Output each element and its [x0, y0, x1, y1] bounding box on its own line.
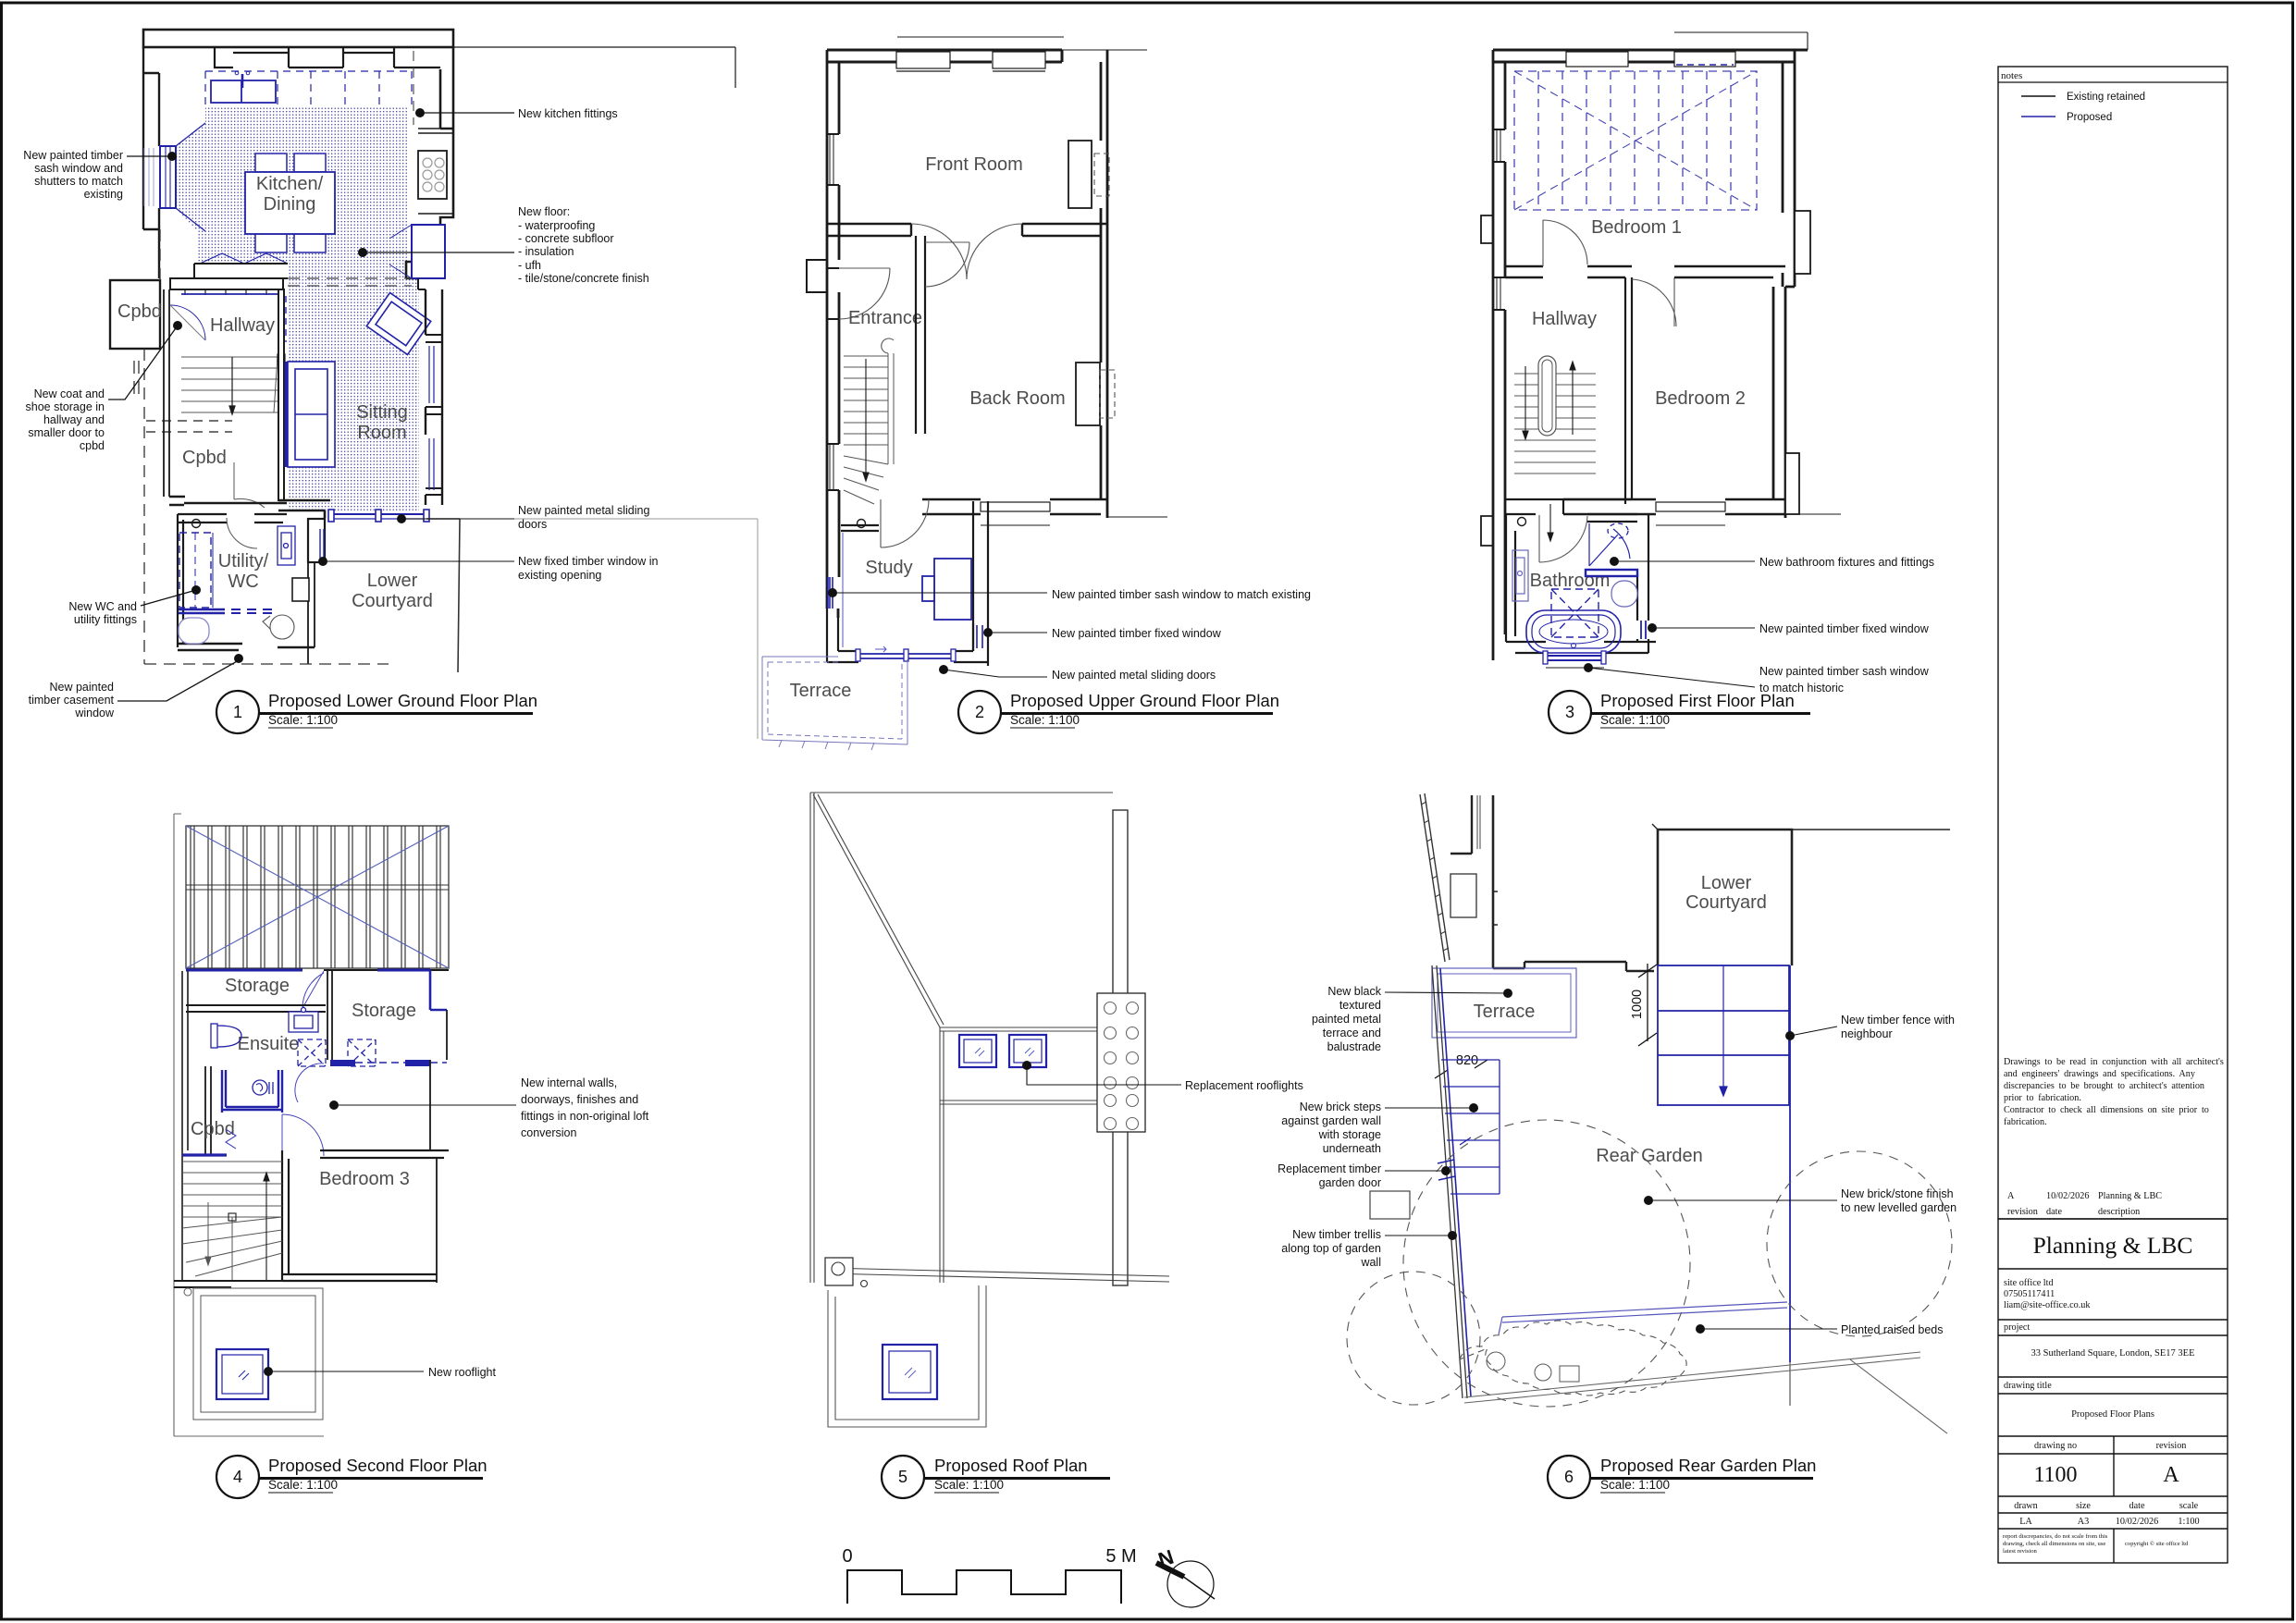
svg-text:- insulation: - insulation [518, 245, 574, 258]
svg-text:Proposed Rear Garden Plan: Proposed Rear Garden Plan [1600, 1456, 1816, 1475]
svg-text:New bathroom fixtures and fitt: New bathroom fixtures and fittings [1759, 556, 1934, 569]
svg-text:Scale: 1:100: Scale: 1:100 [934, 1478, 1004, 1492]
svg-text:drawing no: drawing no [2034, 1441, 2077, 1451]
svg-text:Cpbd: Cpbd [117, 301, 162, 322]
svg-text:hallway and: hallway and [43, 413, 105, 426]
svg-text:New painted timber sash window: New painted timber sash window [1759, 665, 1930, 678]
svg-text:neighbour: neighbour [1841, 1027, 1893, 1040]
svg-text:New painted timber sash window: New painted timber sash window to match … [1052, 588, 1311, 601]
svg-text:Utility/: Utility/ [218, 551, 269, 572]
svg-text:liam@site-office.co.uk: liam@site-office.co.uk [2004, 1300, 2091, 1310]
svg-text:Courtyard: Courtyard [352, 591, 433, 611]
svg-text:with storage: with storage [1318, 1128, 1381, 1141]
svg-text:drawing, check all dimensions: drawing, check all dimensions on site, u… [2003, 1541, 2105, 1547]
svg-text:Proposed Floor Plans: Proposed Floor Plans [2071, 1409, 2154, 1420]
svg-text:Lower: Lower [367, 571, 418, 591]
svg-text:scale: scale [2179, 1501, 2199, 1511]
svg-text:to new levelled garden: to new levelled garden [1841, 1201, 1957, 1214]
svg-text:notes: notes [2001, 70, 2022, 81]
svg-text:Hallway: Hallway [210, 315, 275, 336]
svg-text:1:100: 1:100 [2178, 1517, 2199, 1527]
svg-text:1100: 1100 [2033, 1463, 2077, 1487]
svg-text:New painted metal sliding: New painted metal sliding [518, 504, 649, 517]
svg-text:Planted raised beds: Planted raised beds [1841, 1323, 1944, 1336]
svg-text:6: 6 [1564, 1468, 1574, 1486]
svg-text:textured: textured [1339, 999, 1381, 1012]
svg-text:Scale: 1:100: Scale: 1:100 [1010, 713, 1080, 727]
svg-text:New brick steps: New brick steps [1300, 1100, 1381, 1113]
svg-text:copyright © site office ltd: copyright © site office ltd [2125, 1541, 2189, 1547]
svg-text:Planning & LBC: Planning & LBC [2098, 1191, 2162, 1201]
svg-text:New black: New black [1327, 985, 1381, 998]
svg-text:Sitting: Sitting [356, 402, 408, 423]
svg-text:New WC and: New WC and [68, 600, 137, 613]
svg-text:timber casement: timber casement [29, 694, 115, 707]
svg-text:820: 820 [1456, 1053, 1478, 1068]
svg-text:utility fittings: utility fittings [74, 613, 137, 626]
svg-text:33 Sutherland Square, London,: 33 Sutherland Square, London, SE17 3EE [2031, 1348, 2194, 1359]
svg-text:discrepancies to be brought: discrepancies to be brought to architect… [2004, 1081, 2204, 1091]
svg-text:doorways, finishes and: doorways, finishes and [521, 1093, 638, 1106]
svg-text:Entrance: Entrance [848, 308, 922, 328]
svg-text:A3: A3 [2078, 1517, 2089, 1527]
svg-text:report discrepancies, do not s: report discrepancies, do not scale from … [2003, 1533, 2108, 1540]
svg-text:New rooflight: New rooflight [428, 1366, 496, 1379]
svg-text:Proposed Upper Ground Floor Pl: Proposed Upper Ground Floor Plan [1010, 691, 1279, 710]
svg-text:Proposed Lower Ground Floor Pl: Proposed Lower Ground Floor Plan [268, 691, 537, 710]
svg-text:New fixed timber window in: New fixed timber window in [518, 555, 658, 568]
svg-text:Cpbd: Cpbd [182, 448, 227, 468]
svg-text:terrace and: terrace and [1323, 1027, 1381, 1039]
svg-text:Scale: 1:100: Scale: 1:100 [1600, 1478, 1670, 1492]
svg-text:New floor:: New floor: [518, 205, 570, 218]
svg-text:New painted timber: New painted timber [23, 149, 123, 162]
svg-text:5: 5 [898, 1468, 907, 1486]
svg-text:New coat and: New coat and [34, 387, 105, 400]
svg-text:- concrete subfloor: - concrete subfloor [518, 232, 614, 245]
svg-text:10/02/2026: 10/02/2026 [2116, 1517, 2158, 1527]
svg-text:existing: existing [84, 188, 123, 201]
svg-text:size: size [2076, 1501, 2091, 1511]
svg-text:A: A [2007, 1191, 2015, 1201]
svg-text:New painted timber fixed windo: New painted timber fixed window [1759, 622, 1930, 635]
svg-text:shutters to match: shutters to match [34, 175, 123, 188]
svg-text:Ensuite: Ensuite [238, 1034, 300, 1054]
svg-text:against garden wall: against garden wall [1281, 1114, 1381, 1127]
svg-text:date: date [2046, 1207, 2062, 1217]
svg-text:Hallway: Hallway [1532, 309, 1597, 329]
svg-text:site office ltd: site office ltd [2004, 1278, 2054, 1288]
svg-text:existing opening: existing opening [518, 569, 601, 582]
svg-text:10/02/2026: 10/02/2026 [2046, 1191, 2089, 1201]
svg-text:Terrace: Terrace [1474, 1002, 1536, 1022]
svg-text:Back Room: Back Room [969, 388, 1065, 409]
svg-text:New brick/stone finish: New brick/stone finish [1841, 1187, 1954, 1200]
svg-text:New painted metal sliding door: New painted metal sliding doors [1052, 669, 1216, 682]
svg-text:Replacement rooflights: Replacement rooflights [1185, 1079, 1303, 1092]
svg-text:conversion: conversion [521, 1126, 576, 1139]
svg-text:Bedroom 1: Bedroom 1 [1591, 217, 1682, 238]
svg-text:A: A [2163, 1463, 2179, 1487]
svg-text:WC: WC [228, 572, 258, 592]
svg-text:Contractor to check all di: Contractor to check all dimensions on si… [2004, 1105, 2209, 1115]
svg-text:Planning & LBC: Planning & LBC [2033, 1232, 2193, 1259]
svg-text:Terrace: Terrace [790, 681, 852, 701]
svg-text:to match historic: to match historic [1759, 682, 1844, 695]
svg-text:Scale: 1:100: Scale: 1:100 [1600, 713, 1670, 727]
svg-text:Bedroom 2: Bedroom 2 [1655, 388, 1746, 409]
svg-text:Proposed Roof Plan: Proposed Roof Plan [934, 1456, 1088, 1475]
svg-text:- waterproofing: - waterproofing [518, 219, 595, 232]
svg-text:Bedroom 3: Bedroom 3 [319, 1169, 410, 1189]
svg-text:1: 1 [233, 703, 242, 721]
svg-text:Storage: Storage [352, 1001, 416, 1021]
svg-text:Rear Garden: Rear Garden [1596, 1146, 1703, 1166]
svg-text:Scale: 1:100: Scale: 1:100 [268, 713, 338, 727]
svg-text:cpbd: cpbd [80, 439, 105, 452]
svg-text:Existing retained: Existing retained [2067, 92, 2145, 103]
svg-text:drawing title: drawing title [2004, 1381, 2052, 1391]
svg-text:1000: 1000 [1630, 990, 1645, 1019]
svg-text:New internal walls,: New internal walls, [521, 1076, 617, 1089]
svg-text:3: 3 [1565, 703, 1574, 721]
svg-text:description: description [2098, 1207, 2140, 1217]
svg-text:Proposed Second Floor Plan: Proposed Second Floor Plan [268, 1456, 488, 1475]
svg-text:4: 4 [233, 1468, 242, 1486]
svg-text:garden door: garden door [1319, 1176, 1381, 1189]
svg-text:New timber fence with: New timber fence with [1841, 1014, 1955, 1027]
svg-text:Storage: Storage [225, 976, 290, 996]
svg-text:fabrication.: fabrication. [2004, 1117, 2047, 1127]
svg-text:0: 0 [842, 1546, 852, 1567]
svg-text:Room: Room [357, 423, 406, 443]
svg-text:Kitchen/: Kitchen/ [256, 174, 324, 194]
svg-text:Proposed: Proposed [2067, 112, 2112, 123]
svg-text:5 M: 5 M [1105, 1546, 1136, 1567]
svg-text:New painted timber fixed windo: New painted timber fixed window [1052, 627, 1222, 640]
svg-text:New timber trellis: New timber trellis [1292, 1228, 1381, 1241]
svg-text:window: window [74, 707, 115, 719]
svg-text:project: project [2004, 1322, 2030, 1333]
svg-text:fittings in non-original loft: fittings in non-original loft [521, 1110, 649, 1123]
svg-text:wall: wall [1360, 1256, 1381, 1269]
svg-text:drawn: drawn [2014, 1501, 2037, 1511]
svg-text:Lower: Lower [1701, 873, 1752, 893]
svg-text:Drawings to be read in conjunc: Drawings to be read in conjunction with … [2004, 1057, 2224, 1067]
svg-text:2: 2 [975, 703, 984, 721]
svg-text:- ufh: - ufh [518, 259, 541, 272]
svg-text:doors: doors [518, 518, 547, 531]
svg-text:prior to fabrication.: prior to fabrication. [2004, 1093, 2081, 1103]
svg-text:sash window and: sash window and [34, 162, 123, 175]
svg-text:painted metal: painted metal [1312, 1013, 1381, 1026]
svg-text:Front Room: Front Room [925, 154, 1023, 175]
svg-text:Cpbd: Cpbd [191, 1119, 235, 1139]
svg-text:New painted: New painted [50, 681, 115, 694]
svg-text:along top of garden: along top of garden [1281, 1242, 1381, 1255]
svg-text:balustrade: balustrade [1327, 1040, 1381, 1053]
svg-text:07505117411: 07505117411 [2004, 1289, 2055, 1299]
svg-text:revision: revision [2156, 1441, 2187, 1451]
svg-text:Study: Study [865, 558, 912, 578]
svg-text:revision: revision [2007, 1207, 2038, 1217]
svg-text:LA: LA [2019, 1517, 2032, 1527]
svg-text:underneath: underneath [1323, 1142, 1381, 1155]
svg-text:latest revision: latest revision [2003, 1548, 2038, 1555]
svg-text:Scale: 1:100: Scale: 1:100 [268, 1478, 338, 1492]
svg-text:- tile/stone/concrete finish: - tile/stone/concrete finish [518, 272, 649, 285]
svg-text:date: date [2129, 1501, 2145, 1511]
svg-text:shoe storage in: shoe storage in [26, 400, 105, 413]
svg-text:Dining: Dining [264, 194, 316, 215]
svg-text:Replacement timber: Replacement timber [1278, 1162, 1381, 1175]
svg-text:smaller door to: smaller door to [28, 426, 105, 439]
svg-text:Courtyard: Courtyard [1685, 892, 1767, 913]
svg-text:and engineers' drawings and: and engineers' drawings and specificatio… [2004, 1069, 2196, 1079]
svg-text:New kitchen fittings: New kitchen fittings [518, 107, 618, 120]
